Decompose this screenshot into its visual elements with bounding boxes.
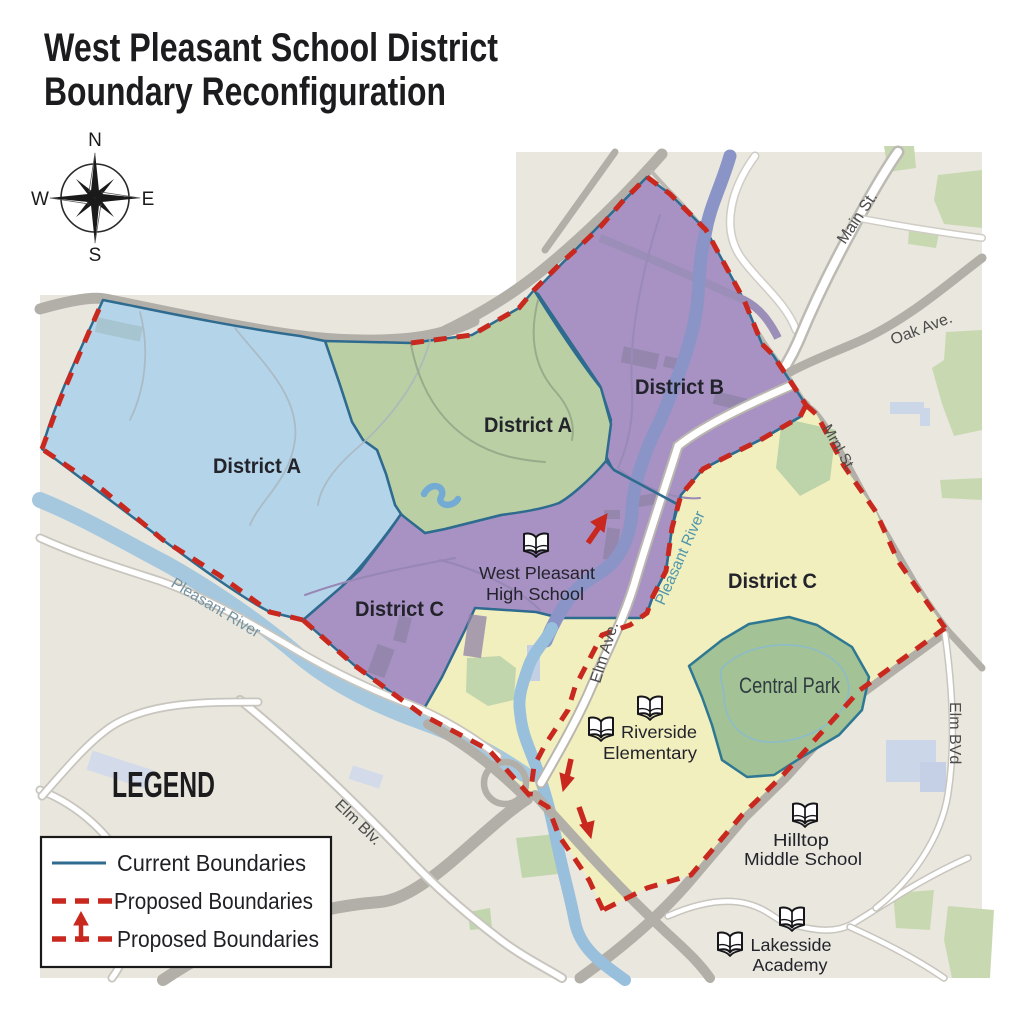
svg-text:Middle School: Middle School (744, 849, 862, 869)
svg-text:Riverside: Riverside (621, 722, 697, 742)
svg-text:W: W (31, 189, 49, 210)
svg-text:High School: High School (486, 584, 584, 604)
svg-text:Academy: Academy (753, 955, 828, 975)
svg-text:N: N (88, 130, 102, 151)
svg-text:Current Boundaries: Current Boundaries (117, 850, 306, 876)
svg-text:Boundary Reconfiguration: Boundary Reconfiguration (44, 70, 446, 114)
svg-text:Elementary: Elementary (603, 743, 697, 763)
svg-text:District C: District C (355, 597, 444, 621)
svg-text:District C: District C (728, 569, 817, 593)
svg-text:West Pleasant: West Pleasant (479, 563, 595, 583)
svg-text:Proposed Boundaries: Proposed Boundaries (117, 926, 319, 952)
svg-text:S: S (89, 245, 102, 266)
svg-text:Elm BVd: Elm BVd (946, 702, 963, 764)
svg-text:E: E (142, 189, 155, 210)
svg-text:Proposed Boundaries: Proposed Boundaries (114, 888, 313, 914)
svg-text:Lakesside: Lakesside (751, 935, 832, 955)
svg-text:West Pleasant School District: West Pleasant School District (44, 26, 498, 70)
svg-text:District A: District A (213, 454, 301, 478)
svg-text:District A: District A (484, 413, 572, 437)
svg-text:LEGEND: LEGEND (112, 764, 215, 805)
svg-text:Hilltop: Hilltop (773, 830, 829, 850)
svg-text:Central Park: Central Park (739, 673, 841, 698)
svg-text:District B: District B (635, 375, 724, 399)
